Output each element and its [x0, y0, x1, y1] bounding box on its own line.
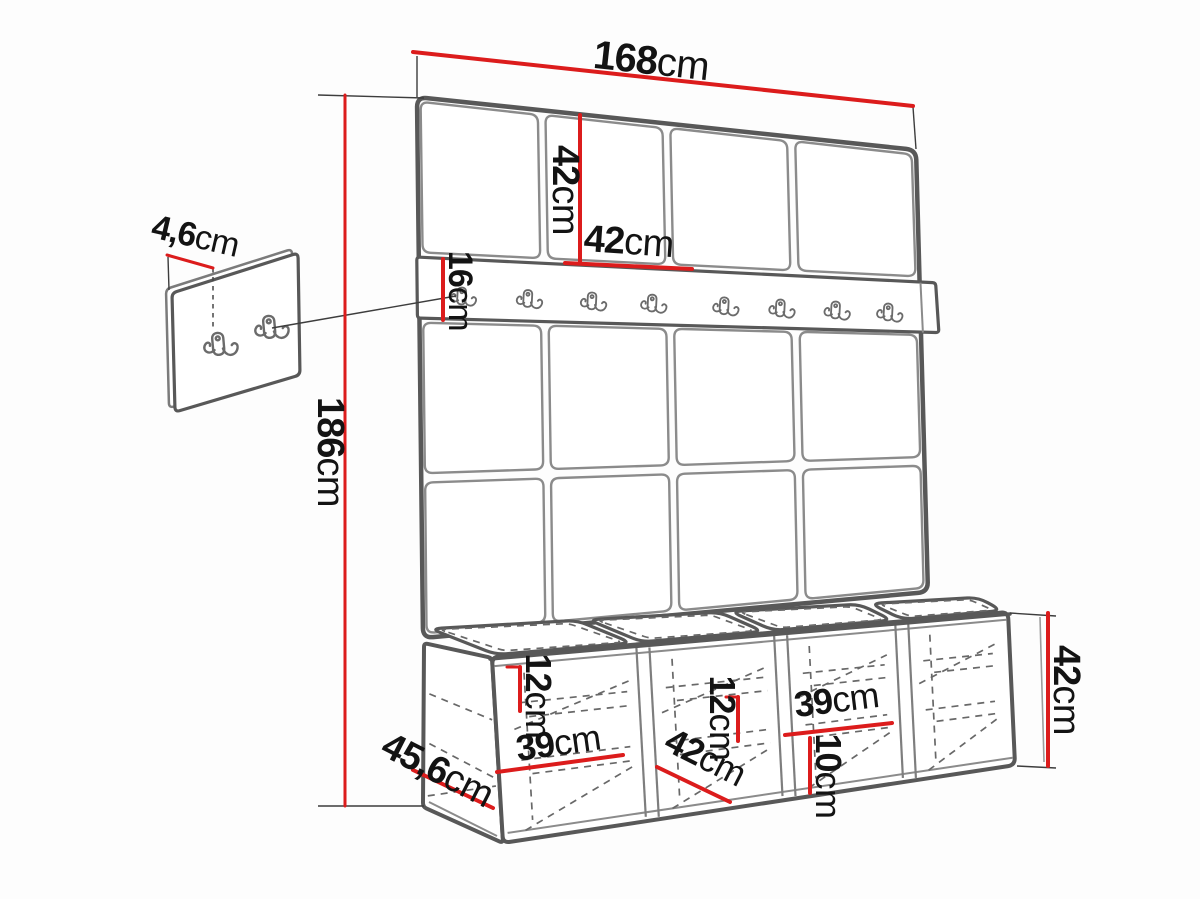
panel-tile — [795, 142, 915, 276]
dim-label-inner-height-2: 12cm — [702, 675, 743, 760]
dim-label-bench-height: 42cm — [1045, 645, 1087, 735]
panel-tile — [677, 470, 797, 609]
dim-label-tile-width: 42cm — [583, 218, 676, 266]
panel-tile — [800, 332, 920, 461]
bench-side-panel — [423, 644, 503, 842]
panel-tile — [425, 479, 545, 633]
dim-label-rail-height: 16cm — [441, 251, 479, 331]
panel-tile — [803, 466, 923, 598]
dim-label-total-height: 186cm — [309, 397, 351, 507]
panel-tile — [670, 129, 790, 270]
panel-tile — [551, 475, 671, 621]
panel-tile — [423, 323, 543, 473]
panel-tile — [421, 103, 540, 258]
ext-detail-corner — [168, 257, 169, 290]
panel-tile — [674, 329, 794, 465]
diagram-canvas: 168cm 42cm 42cm 16cm 186cm 4,6cm 45,6cm … — [0, 0, 1200, 899]
panel-tile — [549, 326, 669, 469]
dim-label-shelf-height: 10cm — [808, 733, 849, 818]
dim-label-tile-height: 42cm — [544, 145, 586, 235]
